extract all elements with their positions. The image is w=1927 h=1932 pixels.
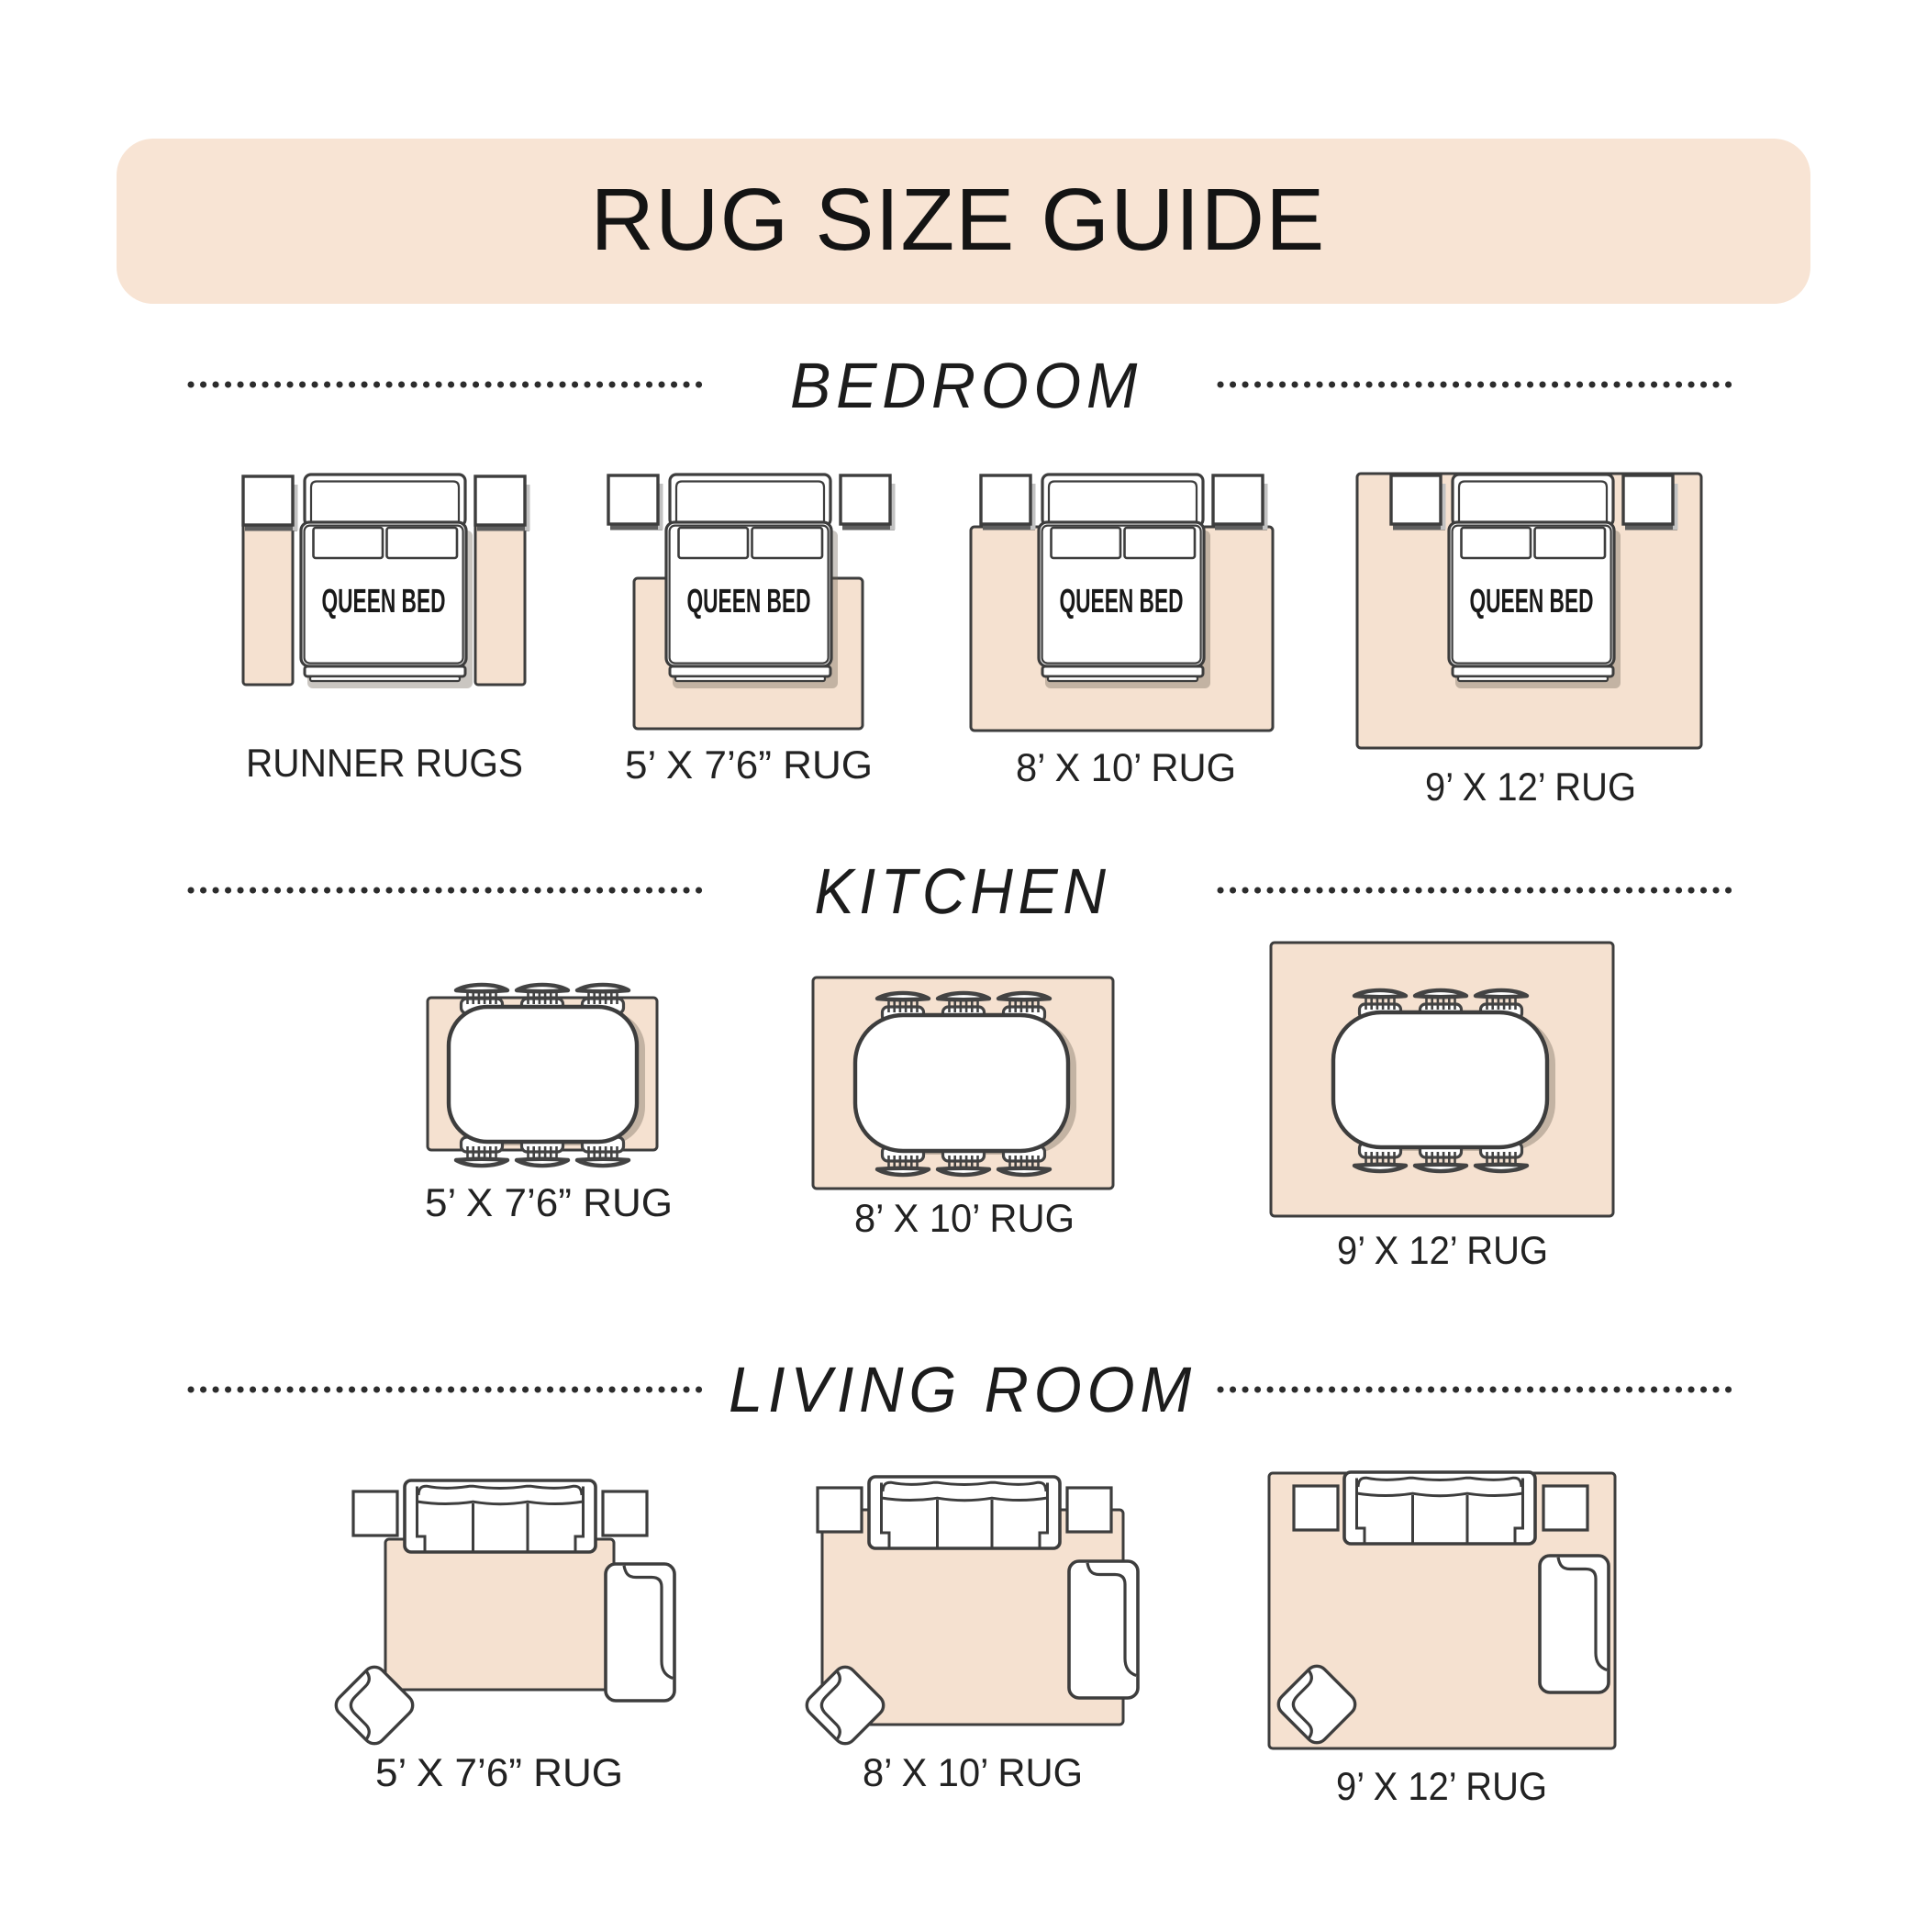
- svg-text:KITCHEN: KITCHEN: [815, 855, 1111, 927]
- svg-text:RUNNER RUGS: RUNNER RUGS: [246, 742, 523, 786]
- svg-text:9’ X 12’ RUG: 9’ X 12’ RUG: [1425, 765, 1636, 810]
- svg-text:RUG SIZE GUIDE: RUG SIZE GUIDE: [591, 171, 1326, 269]
- svg-text:5’ X 7’6” RUG: 5’ X 7’6” RUG: [625, 743, 873, 787]
- svg-text:5’ X 7’6” RUG: 5’ X 7’6” RUG: [375, 1751, 623, 1795]
- svg-text:8’ X 10’ RUG: 8’ X 10’ RUG: [863, 1751, 1083, 1795]
- svg-text:9’ X 12’ RUG: 9’ X 12’ RUG: [1336, 1765, 1547, 1809]
- svg-text:9’ X 12’ RUG: 9’ X 12’ RUG: [1337, 1229, 1548, 1273]
- svg-text:8’ X 10’ RUG: 8’ X 10’ RUG: [854, 1197, 1075, 1241]
- svg-text:8’ X 10’ RUG: 8’ X 10’ RUG: [1016, 746, 1236, 790]
- svg-text:LIVING ROOM: LIVING ROOM: [729, 1354, 1197, 1425]
- svg-text:5’ X 7’6” RUG: 5’ X 7’6” RUG: [425, 1181, 673, 1225]
- svg-text:BEDROOM: BEDROOM: [790, 350, 1142, 421]
